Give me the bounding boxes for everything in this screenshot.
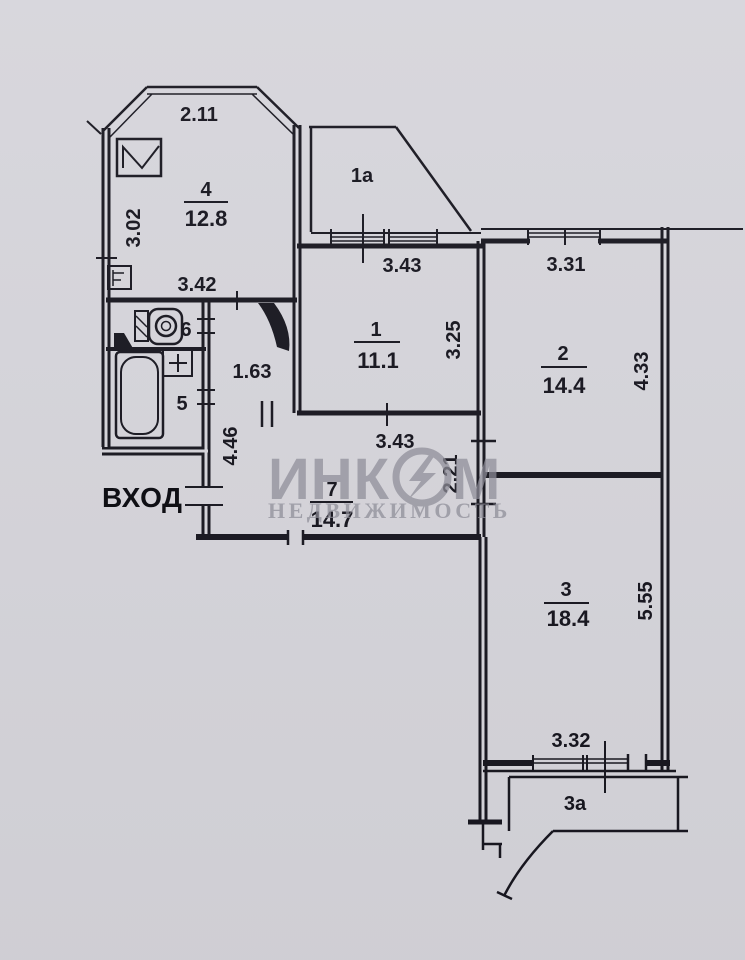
dim-room2-side: 4.33 [631, 352, 653, 391]
dim-room3-bottom: 3.32 [552, 730, 591, 752]
watermark-subtitle: НЕДВИЖИМОСТЬ [268, 498, 511, 523]
room1-area: 11.1 [357, 348, 399, 373]
room6-number: 6 [180, 319, 191, 341]
bathtub-icon [116, 352, 163, 438]
dim-room4-bottom: 3.42 [178, 274, 217, 296]
dim-room2-top: 3.31 [547, 254, 586, 276]
room4-number: 4 [200, 179, 212, 201]
floor-plan-svg: 2.11 3.02 3.42 3.43 3.25 3.31 4.33 1.63 … [0, 0, 745, 960]
dim-room1-top: 3.43 [383, 255, 422, 277]
room3-number: 3 [560, 579, 571, 601]
door-swing-icon [114, 333, 134, 350]
dim-corridor-width: 1.63 [233, 361, 272, 383]
room3-area: 18.4 [547, 606, 591, 631]
room3a-number: 3a [564, 793, 587, 815]
dim-room1-side: 3.25 [443, 321, 465, 360]
room1a-number: 1a [351, 165, 374, 187]
dim-room4-top: 2.11 [180, 104, 218, 126]
room1-number: 1 [370, 319, 381, 341]
room2-area: 14.4 [543, 373, 587, 398]
entrance-label: ВХОД [102, 482, 182, 513]
watermark: ИНК М НЕДВИЖИМОСТЬ [268, 447, 511, 523]
vent-icon [108, 266, 131, 289]
dim-room4-left: 3.02 [123, 209, 145, 248]
room2-number: 2 [557, 343, 568, 365]
door-swing-icon [258, 303, 289, 351]
room4-area: 12.8 [185, 206, 228, 231]
washbasin-icon [163, 350, 192, 376]
dim-hall-side: 4.46 [220, 427, 242, 466]
room5-number: 5 [176, 393, 187, 415]
kitchen-sink-icon [117, 139, 161, 176]
toilet-icon [135, 309, 182, 344]
floor-plan-page: 2.11 3.02 3.42 3.43 3.25 3.31 4.33 1.63 … [0, 0, 745, 960]
dim-room3-side: 5.55 [635, 582, 657, 621]
